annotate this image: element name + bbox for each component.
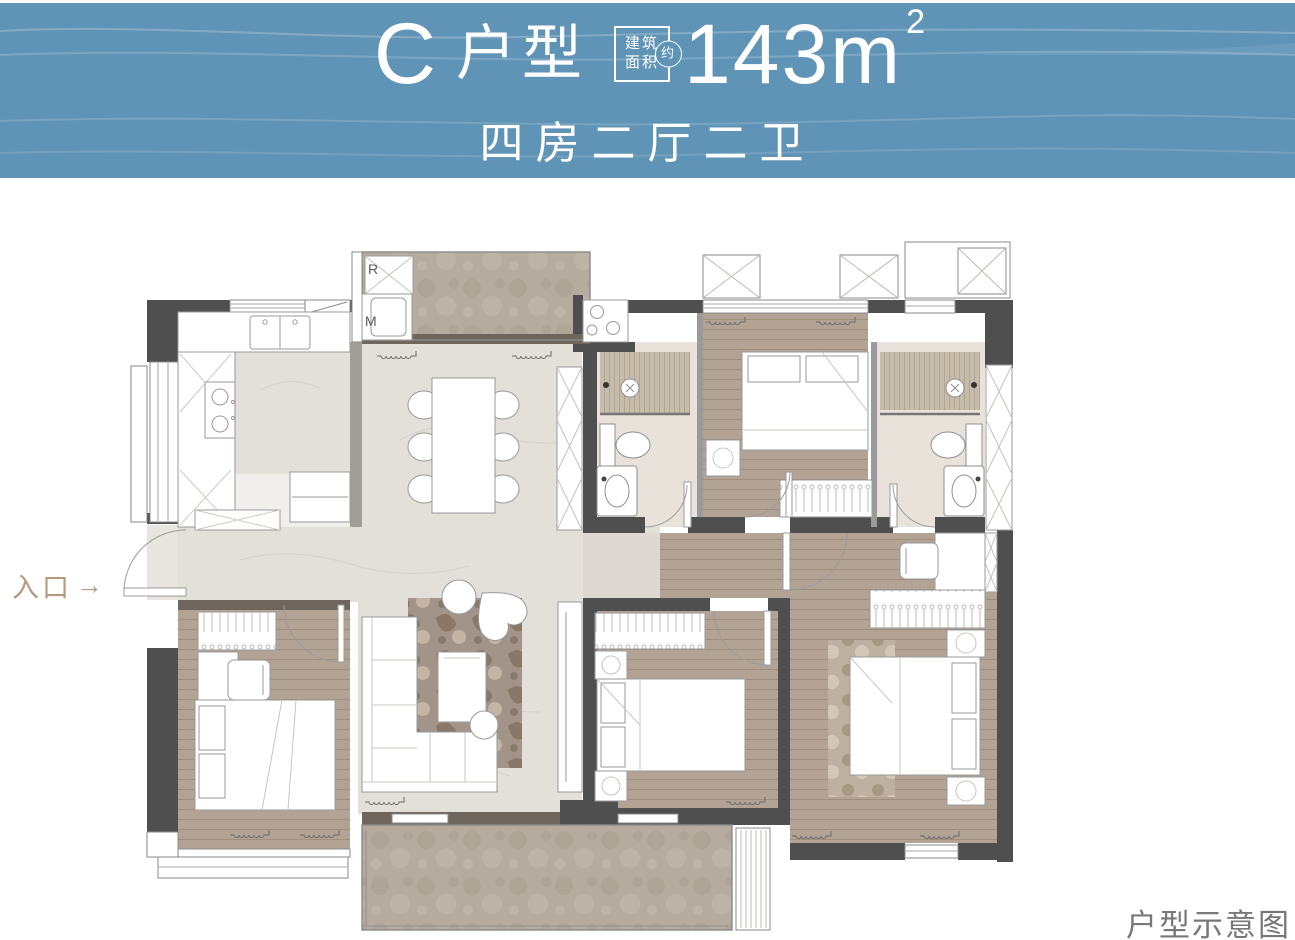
entrance-text: 入口 [12,566,72,605]
bath-sink [597,466,637,516]
header-banner: C 户型 建筑 面积 约 143m 2 四房二厅二卫 [0,3,1295,178]
bed [742,352,868,450]
chair [228,660,270,700]
approx-badge: 约 [655,40,682,67]
nightstand [706,440,740,476]
kitchen-cooktop [583,300,628,342]
stool [442,580,476,614]
area-value: 143m [684,12,902,96]
area-exponent: 2 [906,5,925,39]
wardrobe [198,612,276,650]
wardrobe [780,480,872,517]
tv-console [558,602,582,792]
entrance-arrow-icon: → [76,570,103,601]
toilet [600,424,615,466]
bath-sink [944,466,984,516]
side-table [470,711,498,739]
wardrobe [595,613,705,649]
dining-table [432,378,495,513]
nightstand [595,771,627,801]
area-box: 建筑 面积 约 [614,26,670,82]
entrance-label: 入口 → [12,566,103,605]
banner-subtitle: 四房二厅二卫 [480,107,816,171]
desk [935,533,985,590]
area-box-line1: 建筑 [625,35,659,54]
banner-title-row: C 户型 建筑 面积 约 143m 2 [374,11,921,97]
fridge-label: R [368,261,378,277]
unit-word: 户型 [456,24,588,84]
bed [850,657,980,775]
kitchen-stove [205,382,235,438]
floorplan-card: R M [0,0,1295,940]
plan-caption: 户型示意图 [1126,900,1291,940]
unit-letter: C [374,11,436,97]
bed [597,679,745,771]
washer-label: M [365,313,377,329]
wardrobe [870,590,985,628]
entrance-door-leaf [124,588,186,596]
nightstand [595,651,627,679]
toilet [966,424,982,466]
area-box-line2: 面积 [625,54,659,73]
